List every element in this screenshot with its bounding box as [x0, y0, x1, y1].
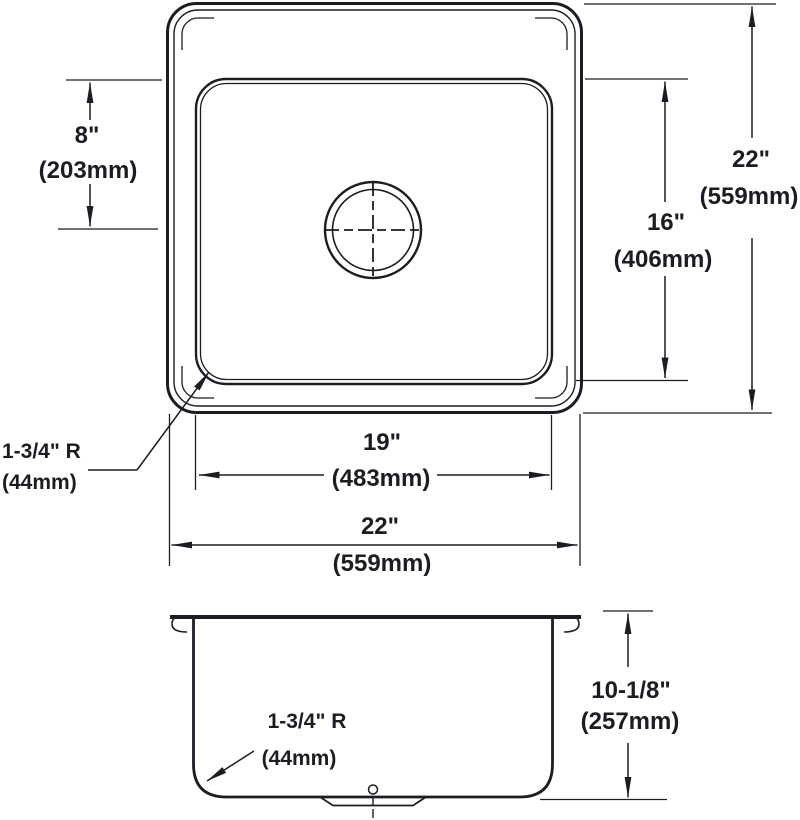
dim-overall-depth: 10-1/8" (257mm) [540, 611, 679, 800]
dim-203mm-label: (203mm) [39, 157, 138, 184]
rim-corner-arc-top-left [182, 18, 214, 50]
bowl-section-outline [194, 619, 553, 797]
radius-label: 1-3/4" R [268, 710, 347, 733]
dim-10-1-8in-label: 10-1/8" [591, 677, 670, 704]
sink-spec-drawing: 8" (203mm) 16" (406mm) 22" (559mm) 19" (… [0, 0, 800, 820]
leader-arrow [137, 372, 209, 470]
dim-22in-right-label: 22" [732, 146, 770, 173]
dim-406mm-label: (406mm) [614, 246, 713, 273]
bowl-opening-inner-line [201, 84, 548, 380]
drain-hole [369, 785, 378, 794]
drain-outer-circle [325, 182, 421, 278]
dim-19in-label: 19" [363, 429, 401, 456]
radius-label: 1-3/4" R [2, 440, 81, 463]
dim-22in-bottom-label: 22" [361, 513, 399, 540]
dim-483mm-label: (483mm) [332, 465, 431, 492]
bowl-opening [196, 79, 552, 384]
radius-mm-label: (44mm) [262, 747, 337, 770]
rim-corner-arc-top-right [535, 18, 567, 50]
side-view [170, 616, 581, 819]
rim-corner-arc-bottom-right [535, 366, 567, 398]
dim-559mm-right-label: (559mm) [700, 183, 799, 210]
dim-559mm-bottom-label: (559mm) [333, 550, 432, 577]
dim-bowl-top-to-drain: 8" (203mm) [39, 80, 162, 229]
radius-mm-label: (44mm) [2, 471, 77, 494]
drawing-canvas: 8" (203mm) 16" (406mm) 22" (559mm) 19" (… [0, 0, 800, 820]
top-view [168, 4, 582, 413]
dim-8in-label: 8" [75, 122, 100, 149]
rim-corner-arc-bottom-left [182, 366, 214, 398]
dim-overall-front-to-back: 22" (559mm) [583, 4, 798, 413]
sink-rim-line [174, 10, 575, 406]
leader-arrow [207, 751, 254, 781]
dim-16in-label: 16" [647, 209, 685, 236]
callout-bowl-corner-radius: 1-3/4" R (44mm) [2, 372, 209, 494]
callout-bottom-corner-radius: 1-3/4" R (44mm) [207, 710, 346, 781]
dim-bowl-front-to-back: 16" (406mm) [576, 79, 712, 381]
dim-257mm-label: (257mm) [581, 708, 680, 735]
dim-bowl-left-to-right: 19" (483mm) [196, 415, 552, 492]
sink-outer-edge [168, 4, 582, 413]
